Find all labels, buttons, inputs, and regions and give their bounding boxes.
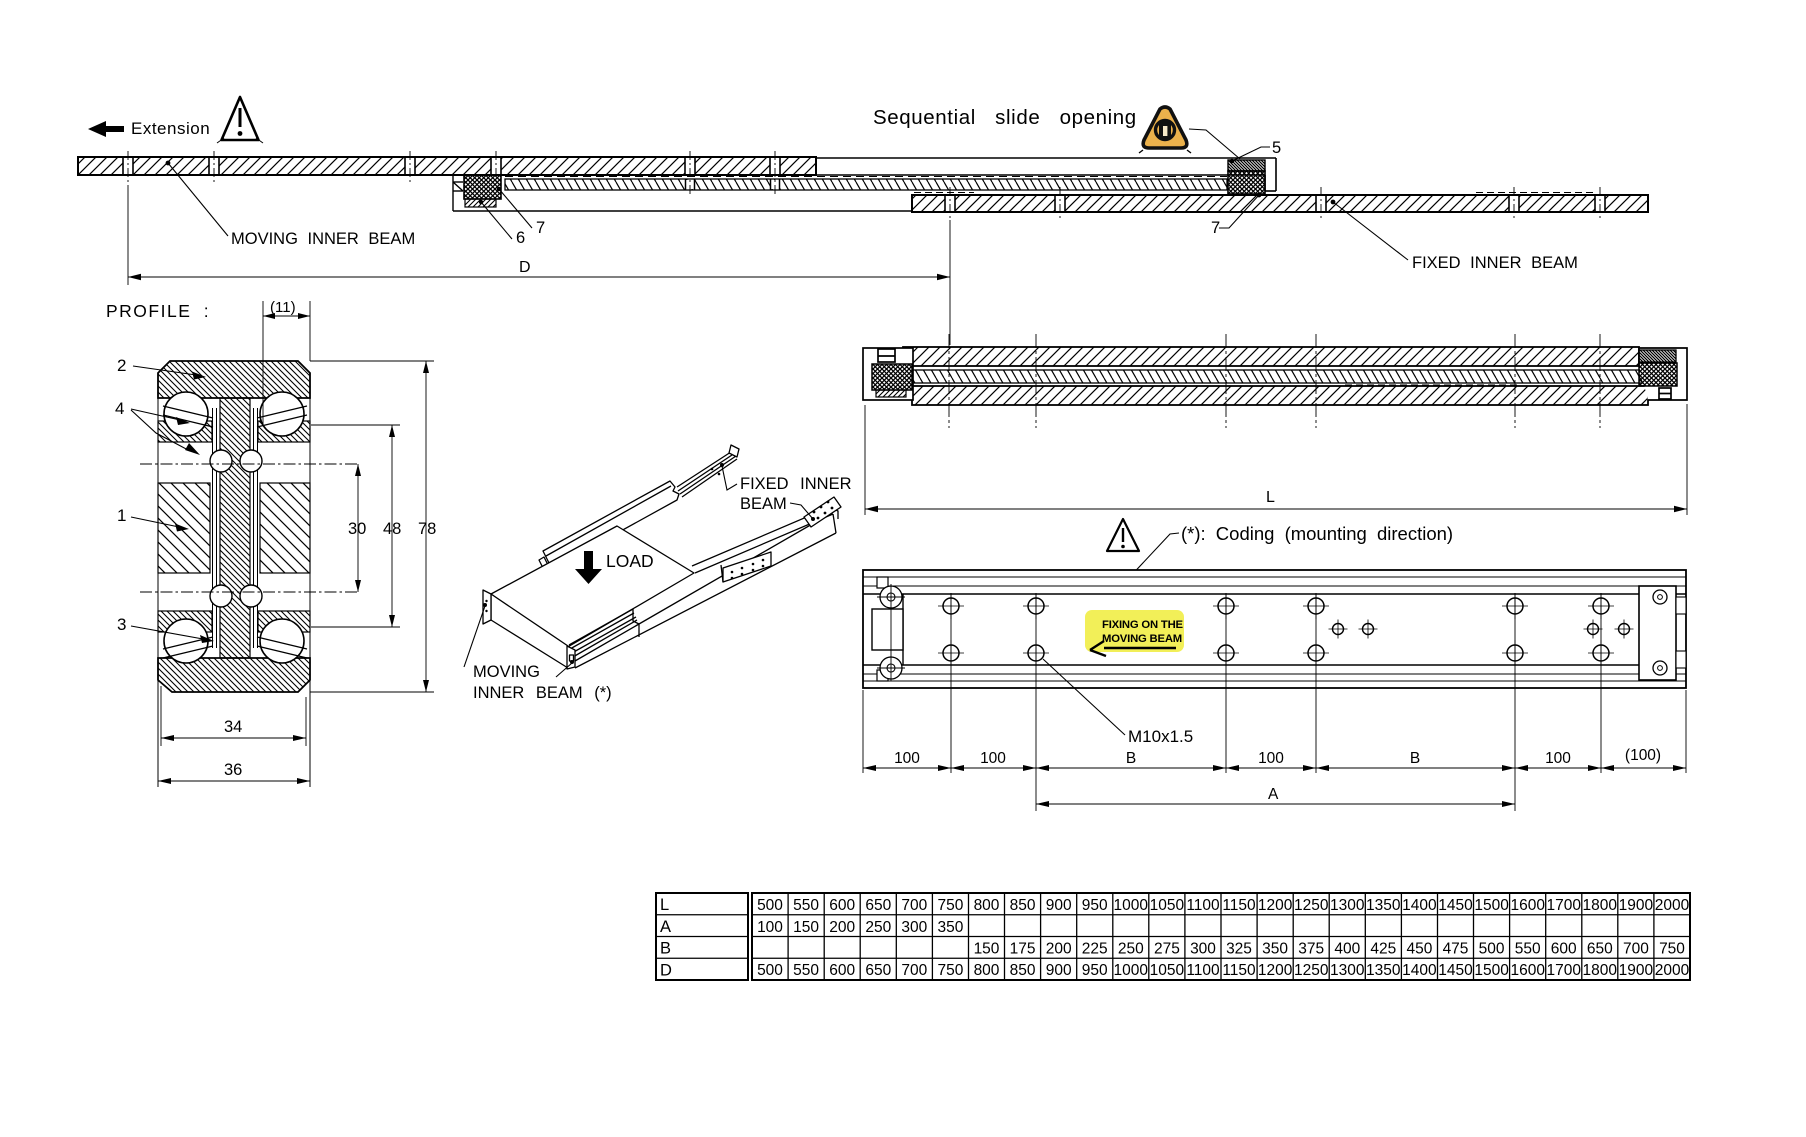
svg-text:100: 100 (1545, 750, 1571, 767)
svg-text:1250: 1250 (1294, 962, 1329, 979)
svg-text:Extension: Extension (131, 119, 210, 138)
svg-text:(11): (11) (270, 299, 296, 316)
svg-text:100: 100 (894, 750, 920, 767)
svg-text:1900: 1900 (1619, 897, 1654, 914)
svg-text:1450: 1450 (1438, 962, 1473, 979)
svg-text:500: 500 (757, 897, 783, 914)
svg-text:400: 400 (1334, 941, 1360, 958)
svg-text:150: 150 (793, 919, 819, 936)
svg-text:6: 6 (516, 229, 525, 247)
svg-text:750: 750 (937, 962, 963, 979)
svg-text:1600: 1600 (1510, 897, 1545, 914)
svg-text:1900: 1900 (1619, 962, 1654, 979)
svg-text:1150: 1150 (1222, 962, 1256, 979)
svg-text:1350: 1350 (1366, 962, 1401, 979)
svg-text:1800: 1800 (1583, 897, 1618, 914)
svg-text:450: 450 (1406, 941, 1432, 958)
svg-text:(100): (100) (1625, 747, 1661, 764)
svg-text:(*): Coding (mounting directio: (*): Coding (mounting direction) (1181, 523, 1453, 544)
svg-text:30: 30 (348, 520, 366, 538)
svg-text:B: B (1126, 750, 1136, 767)
svg-text:950: 950 (1082, 962, 1108, 979)
svg-text:950: 950 (1082, 897, 1108, 914)
svg-text:1: 1 (117, 506, 126, 525)
svg-text:1200: 1200 (1258, 962, 1293, 979)
svg-text:425: 425 (1370, 941, 1396, 958)
svg-text:475: 475 (1443, 941, 1469, 958)
svg-text:Sequential slide opening: Sequential slide opening (873, 106, 1137, 129)
svg-text:375: 375 (1298, 941, 1324, 958)
svg-text:600: 600 (829, 897, 855, 914)
svg-text:1100: 1100 (1186, 897, 1220, 914)
svg-text:MOVING BEAM: MOVING BEAM (1102, 633, 1182, 645)
svg-text:B: B (1410, 750, 1420, 767)
svg-text:4: 4 (115, 399, 124, 418)
svg-text:800: 800 (974, 962, 1000, 979)
svg-text:BEAM: BEAM (740, 495, 787, 513)
svg-text:1400: 1400 (1402, 897, 1437, 914)
svg-text:275: 275 (1154, 941, 1180, 958)
svg-text:1600: 1600 (1510, 962, 1545, 979)
svg-text:7: 7 (1211, 219, 1220, 237)
svg-text:B: B (660, 940, 671, 958)
svg-text:1700: 1700 (1546, 962, 1581, 979)
svg-text:700: 700 (1623, 941, 1649, 958)
svg-text:850: 850 (1010, 962, 1036, 979)
svg-text:1150: 1150 (1222, 897, 1256, 914)
svg-text:100: 100 (1258, 750, 1284, 767)
svg-text:2: 2 (117, 356, 126, 375)
svg-text:1300: 1300 (1330, 897, 1365, 914)
svg-text:1050: 1050 (1150, 897, 1185, 914)
svg-text:MOVING INNER BEAM: MOVING INNER BEAM (231, 230, 415, 248)
svg-text:A: A (1268, 786, 1279, 803)
svg-text:1800: 1800 (1583, 962, 1618, 979)
svg-text:D: D (660, 962, 672, 980)
svg-text:1300: 1300 (1330, 962, 1365, 979)
svg-text:1250: 1250 (1294, 897, 1329, 914)
svg-text:MOVING: MOVING (473, 663, 540, 681)
svg-text:175: 175 (1010, 941, 1036, 958)
svg-text:M10x1.5: M10x1.5 (1128, 727, 1193, 746)
svg-text:350: 350 (937, 919, 963, 936)
svg-text:FIXED INNER BEAM: FIXED INNER BEAM (1412, 254, 1578, 272)
svg-text:700: 700 (901, 897, 927, 914)
svg-text:1450: 1450 (1438, 897, 1473, 914)
svg-text:650: 650 (865, 897, 891, 914)
svg-text:1500: 1500 (1474, 897, 1509, 914)
svg-text:225: 225 (1082, 941, 1108, 958)
svg-text:200: 200 (829, 919, 855, 936)
svg-text:A: A (660, 918, 671, 936)
svg-text:1100: 1100 (1186, 962, 1220, 979)
svg-text:1200: 1200 (1258, 897, 1293, 914)
svg-text:1400: 1400 (1402, 962, 1437, 979)
svg-text:48: 48 (383, 520, 401, 538)
svg-text:550: 550 (793, 897, 819, 914)
svg-text:600: 600 (829, 962, 855, 979)
svg-text:200: 200 (1046, 941, 1072, 958)
svg-text:1350: 1350 (1366, 897, 1401, 914)
svg-text:550: 550 (793, 962, 819, 979)
svg-text:250: 250 (865, 919, 891, 936)
svg-text:5: 5 (1272, 139, 1281, 157)
svg-text:500: 500 (757, 962, 783, 979)
svg-text:L: L (1266, 489, 1275, 506)
svg-text:7: 7 (536, 219, 545, 237)
svg-text:1000: 1000 (1114, 962, 1149, 979)
svg-text:1700: 1700 (1546, 897, 1581, 914)
svg-text:900: 900 (1046, 962, 1072, 979)
svg-text:36: 36 (224, 761, 242, 779)
svg-text:1000: 1000 (1114, 897, 1149, 914)
svg-text:34: 34 (224, 718, 242, 736)
svg-text:300: 300 (901, 919, 927, 936)
svg-text:78: 78 (418, 520, 436, 538)
svg-text:850: 850 (1010, 897, 1036, 914)
svg-text:100: 100 (980, 750, 1006, 767)
svg-text:100: 100 (757, 919, 783, 936)
svg-text:LOAD: LOAD (606, 551, 654, 571)
svg-text:750: 750 (1659, 941, 1685, 958)
svg-text:550: 550 (1515, 941, 1541, 958)
svg-text:150: 150 (974, 941, 1000, 958)
svg-text:750: 750 (937, 897, 963, 914)
svg-text:L: L (660, 896, 669, 914)
svg-text:350: 350 (1262, 941, 1288, 958)
svg-text:D: D (519, 259, 531, 276)
svg-text:2000: 2000 (1655, 897, 1690, 914)
svg-text:650: 650 (1587, 941, 1613, 958)
svg-text:650: 650 (865, 962, 891, 979)
svg-text:FIXING ON THE: FIXING ON THE (1102, 619, 1184, 631)
svg-text:2000: 2000 (1655, 962, 1690, 979)
svg-text:800: 800 (974, 897, 1000, 914)
svg-text:PROFILE :: PROFILE : (106, 301, 210, 321)
svg-text:300: 300 (1190, 941, 1216, 958)
svg-text:700: 700 (901, 962, 927, 979)
svg-text:INNER BEAM (*): INNER BEAM (*) (473, 684, 612, 702)
svg-text:900: 900 (1046, 897, 1072, 914)
svg-text:3: 3 (117, 615, 126, 634)
svg-text:500: 500 (1479, 941, 1505, 958)
svg-text:600: 600 (1551, 941, 1577, 958)
svg-text:FIXED INNER: FIXED INNER (740, 475, 852, 493)
svg-text:250: 250 (1118, 941, 1144, 958)
svg-text:325: 325 (1226, 941, 1252, 958)
svg-text:1050: 1050 (1150, 962, 1185, 979)
svg-text:1500: 1500 (1474, 962, 1509, 979)
